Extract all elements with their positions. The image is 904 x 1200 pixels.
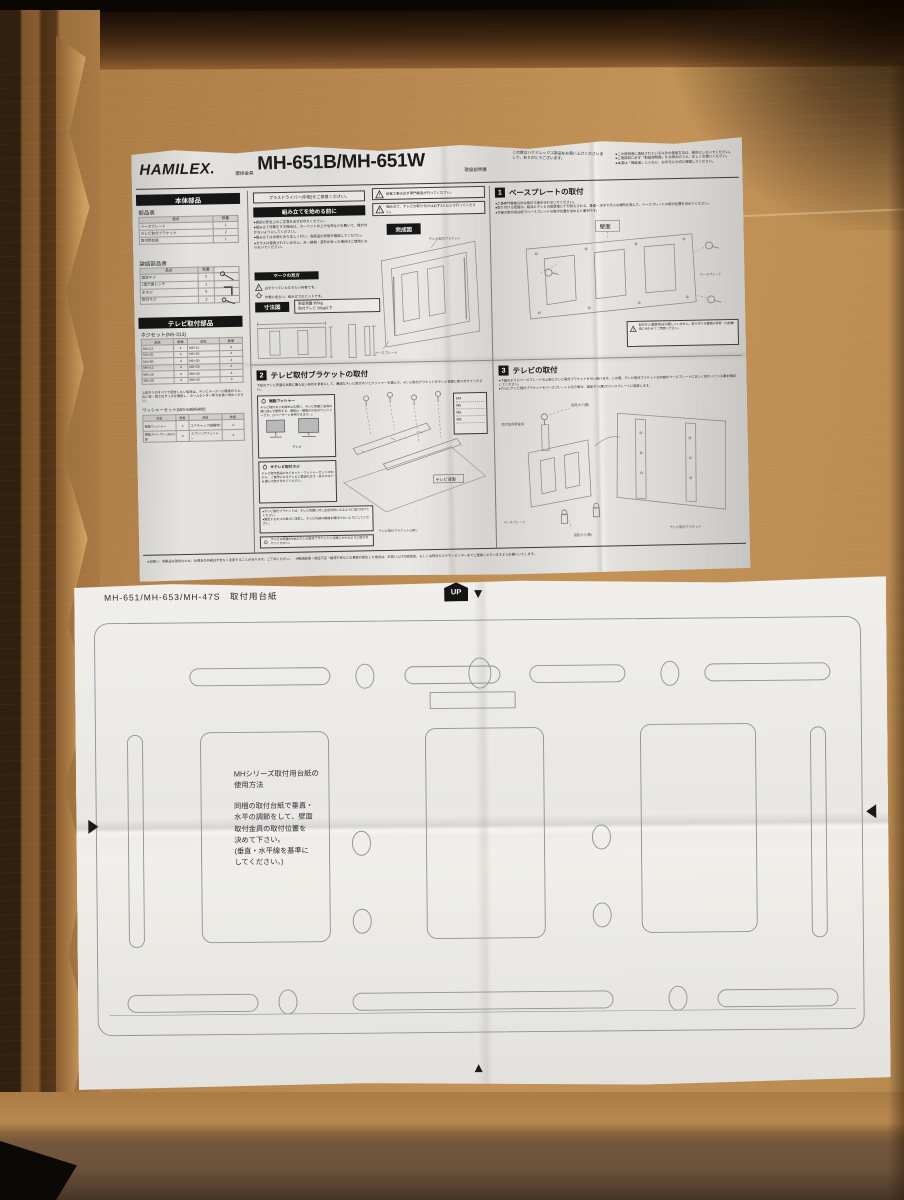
warning-text: 設置工事は必ず専門業者が行ってください。 bbox=[386, 190, 454, 196]
table-row: M5×304M8×454 bbox=[142, 376, 243, 385]
screwdriver-note-box: プラスドライバー(中型)をご用意ください。 bbox=[253, 190, 365, 203]
section3-number: 3 bbox=[498, 365, 508, 375]
mark-must-text: 必ずやっていただきたい内容です。 bbox=[265, 284, 317, 290]
screw-top-label: 固定ネジ(黒) bbox=[571, 402, 589, 407]
spec-box: 製品質量 約5kg 取付テレビ 50kg以下 bbox=[294, 298, 380, 314]
table-row: 樹脂スペーサー15mm厚4スプリングワッシャー4 bbox=[143, 429, 244, 442]
finished-figure-header: 完成図 bbox=[387, 223, 421, 235]
finished-figure: テレビ取付ブラケット ベースプレート bbox=[371, 235, 490, 359]
section1-diagram: 壁面 ベースプレート bbox=[496, 217, 738, 324]
hook-label: 取付金具受金具 bbox=[502, 421, 525, 426]
plate-label: ベースプレート bbox=[700, 271, 722, 276]
screw-size: M8 bbox=[456, 416, 484, 424]
svg-text:!: ! bbox=[633, 327, 634, 332]
doc-type: 取扱説明書 bbox=[464, 167, 487, 173]
model-title: MH-651B/MH-651W bbox=[257, 150, 425, 175]
brand-logo: HAMILEX. bbox=[139, 160, 215, 179]
section2-number: 2 bbox=[256, 370, 266, 380]
plate-label: ベースプレート bbox=[375, 350, 397, 355]
section1-title: ベースプレートの取付 bbox=[509, 186, 584, 198]
mark-tip-text: 作業に役立つ、組み立てのヒントです。 bbox=[265, 293, 324, 299]
left-registration-arrow bbox=[88, 820, 98, 834]
screw-set-table: 品名数量品名数量 M4×124M6×124M4×204M6×204M4×304M… bbox=[141, 337, 244, 385]
marks-legend-header: マークの見方 bbox=[255, 271, 319, 280]
bulb-icon bbox=[255, 292, 263, 300]
mounting-template-sheet: MH-651/MH-653/MH-47S 取付用台紙 bbox=[74, 576, 891, 1090]
warning-icon: ! bbox=[375, 205, 384, 214]
body-parts-header: 本体部品 bbox=[136, 193, 240, 206]
section2-bottom-tip: テレビの荷重が2本のテレビ取付ブラケットに均等にかかるように取り付けてください。 bbox=[260, 534, 374, 548]
warning-icon: ! bbox=[630, 324, 637, 334]
warning-icon: ! bbox=[375, 189, 384, 198]
usage-body: 同梱の取付台紙で垂直・水平の調節をして、壁面取付金具の取付位置を決めて下さい。(… bbox=[234, 800, 349, 868]
usage-title-line2: 使用方法 bbox=[234, 778, 348, 790]
section1-number: 1 bbox=[495, 188, 505, 198]
note-line: ●固定するネジの長さに注意し、テレビ内部の機器を傷付けないようにしてください。 bbox=[262, 516, 370, 526]
usage-line: してください。) bbox=[235, 855, 349, 867]
mark-must-row: ! 必ずやっていただきたい内容です。 bbox=[255, 282, 317, 291]
warning-icon: ! bbox=[255, 283, 263, 291]
plate-label: ベースプレート bbox=[504, 519, 526, 524]
tip-body: テレビ取付部品のネジセット・ワッシャーセットの中から、ご使用になるテレビに最適な… bbox=[262, 471, 334, 484]
screw-tip-box: ※テレビ取付ネジ テレビ取付部品のネジセット・ワッシャーセットの中から、ご使用に… bbox=[258, 460, 337, 504]
warning-box-2: ! 組み立て、テレビの取り付けは必ず2人以上で行ってください。 bbox=[372, 201, 485, 216]
tip-title: ※テレビ取付ネジ bbox=[270, 465, 300, 471]
bottom-registration-arrow bbox=[475, 1064, 483, 1072]
dimension-drawing bbox=[252, 314, 385, 363]
tv-back-label: テレビ背面 bbox=[436, 476, 456, 482]
washer-tip-box: 樹脂ワッシャー テレビ取付ネジを締め込む際に、テレビ背面と金具の間に挟んで使用す… bbox=[257, 394, 336, 459]
section3-bullets: ●下図のようにベースプレートの上部にテレビ取付ブラケットを引っ掛けます。この際、… bbox=[499, 374, 739, 391]
section3-diagram: 固定ネジ(黒) 取付金具受金具 ベースプレート テレビ取付ブラケット 固定ネジ(… bbox=[499, 391, 742, 542]
greeting-text: この度はハヤミレックス製品をお買い上げくださいまして、ありがとうございます。 bbox=[512, 151, 606, 163]
tip-title: 樹脂ワッシャー bbox=[269, 399, 295, 405]
warning-text: 組み立て、テレビの取り付けは必ず2人以上で行ってください。 bbox=[386, 203, 482, 214]
template-usage-text: MHシリーズ取付用台紙の 使用方法 同梱の取付台紙で垂直・水平の調節をして、壁面… bbox=[234, 767, 349, 867]
before-assembly-header: 組み立てを始める前に bbox=[253, 205, 365, 217]
section1-bullets: ●工事専門業者以外は取付工事を行わないでください。●取り付ける壁面は、製品とテレ… bbox=[495, 197, 735, 215]
table-row: 取付用台紙1 bbox=[139, 235, 238, 244]
top-registration-arrow bbox=[474, 590, 482, 598]
washer-set-table: 品名数量品名数量 樹脂ワッシャー4エアキャップ(緩衝材)4樹脂スペーサー15mm… bbox=[142, 413, 245, 443]
warning-box-1: ! 設置工事は必ず専門業者が行ってください。 bbox=[372, 186, 485, 200]
section1-caution-box: ! 取付ネジ(壁面用)は付属していません。取り付ける壁面の材質・内部構造に合わせ… bbox=[627, 319, 739, 347]
box-right-edge-shadow bbox=[888, 60, 904, 1200]
bracket-label: テレビ取付ブラケット bbox=[670, 524, 702, 530]
section2-title: テレビ取付ブラケットの取付 bbox=[270, 368, 368, 381]
tv-parts-header: テレビ取付部品 bbox=[138, 316, 242, 329]
parts-table: 品名数量 ベースプレート1テレビ取付ブラケット2取付用台紙1 bbox=[138, 215, 239, 245]
spec-tv-weight: 取付テレビ 50kg以下 bbox=[298, 305, 376, 312]
template-outline-drawing bbox=[74, 576, 891, 1090]
before-assembly-bullets: ●表記の安全上のご注意を必ずお守りください。●組み立て作業をする場合は、カーペッ… bbox=[253, 218, 371, 251]
caution-text: 取付ネジ(壁面用)は付属していません。取り付ける壁面の材質・内部構造に合わせてご… bbox=[639, 322, 736, 344]
tv-stand-icons bbox=[260, 417, 330, 440]
svg-text:!: ! bbox=[258, 285, 259, 290]
svg-text:!: ! bbox=[379, 192, 381, 198]
svg-text:!: ! bbox=[379, 208, 381, 214]
bracket-label: テレビ取付ブラケット bbox=[429, 235, 461, 241]
tip-text: テレビの荷重が2本のテレビ取付ブラケットに均等にかかるように取り付けてください。 bbox=[271, 536, 371, 546]
dimensions-header: 寸法図 bbox=[255, 302, 289, 313]
bulb-icon bbox=[263, 539, 269, 546]
instruction-manual-sheet: HAMILEX. 壁掛金具 MH-651B/MH-651W 取扱説明書 この度は… bbox=[131, 137, 751, 582]
bracket-label: テレビ取付ブラケット(2本) bbox=[379, 527, 417, 533]
section2-notes-box: ●テレビ取付ブラケットは、テレビ背面に対し左右対称になるように取り付けてください… bbox=[259, 505, 373, 533]
header-notes: ●この説明書に表記されている以外の使用方法は、絶対にしないでください。●ご使用前… bbox=[615, 150, 737, 166]
photo-scene: HAMILEX. 壁掛金具 MH-651B/MH-651W 取扱説明書 この度は… bbox=[0, 0, 904, 1200]
box-bottom-edge bbox=[0, 1092, 904, 1200]
section3-title: テレビの取付 bbox=[512, 364, 557, 376]
screw-bottom-label: 固定ネジ(黒) bbox=[574, 532, 592, 537]
wall-label: 壁面 bbox=[600, 222, 612, 230]
product-category: 壁掛金具 bbox=[235, 171, 253, 177]
screw-size-box: M4M5M6M8 bbox=[453, 392, 488, 435]
right-registration-arrow bbox=[866, 804, 876, 818]
screw-wrench-icons bbox=[219, 271, 240, 307]
tv-label: テレビ bbox=[261, 444, 333, 449]
screw-note: 上記ネジのすべてで適合しない場合は、テレビメーカーに確認のうえ、ねじ径・長さのサ… bbox=[142, 389, 244, 404]
